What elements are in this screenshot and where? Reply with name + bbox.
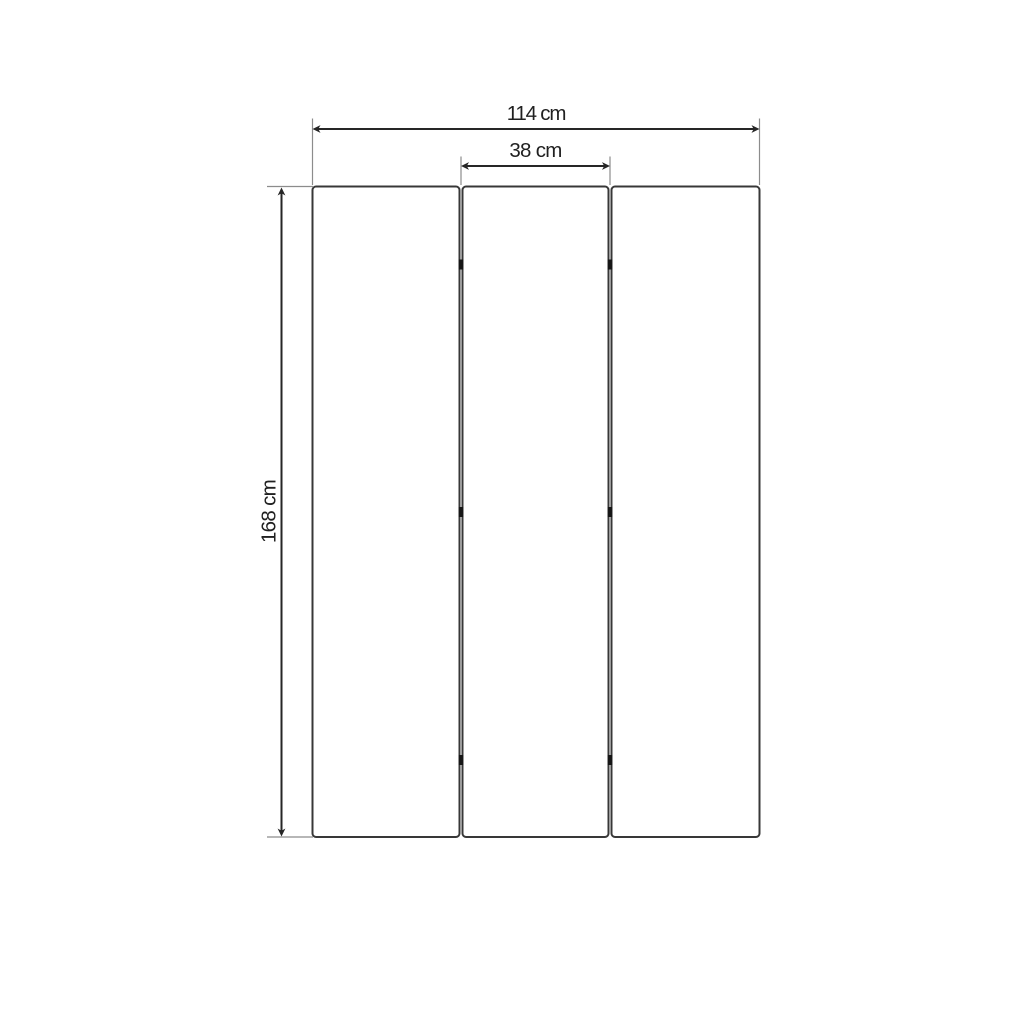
svg-text:38 cm: 38 cm (509, 139, 561, 162)
svg-text:168 cm: 168 cm (258, 480, 281, 543)
svg-text:114 cm: 114 cm (507, 102, 566, 125)
